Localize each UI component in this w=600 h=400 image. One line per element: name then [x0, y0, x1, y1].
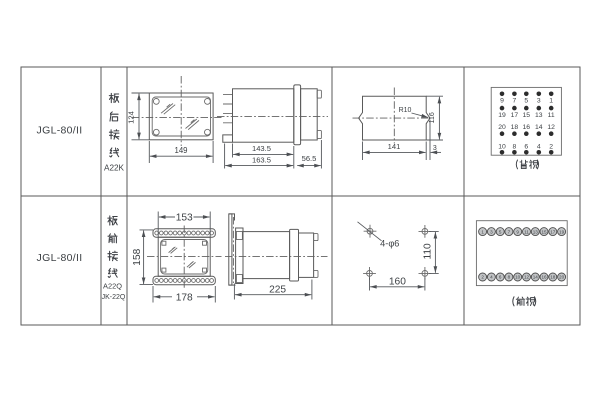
svg-text:153: 153	[176, 213, 193, 224]
svg-text:141: 141	[388, 142, 401, 151]
svg-text:A22Q: A22Q	[103, 282, 122, 291]
svg-text:124: 124	[126, 111, 135, 124]
svg-text:16: 16	[523, 124, 531, 131]
svg-text:2: 2	[481, 275, 484, 280]
svg-text:17: 17	[550, 229, 556, 234]
svg-text:19: 19	[498, 112, 506, 119]
svg-text:10: 10	[515, 275, 521, 280]
svg-text:14: 14	[535, 124, 543, 131]
svg-text:9: 9	[500, 98, 504, 105]
svg-text:5: 5	[524, 98, 528, 105]
svg-text:17: 17	[511, 112, 519, 119]
svg-text:4: 4	[537, 143, 541, 150]
svg-text:7: 7	[508, 229, 511, 234]
svg-text:56.5: 56.5	[302, 154, 317, 163]
svg-text:1: 1	[549, 98, 553, 105]
svg-text:225: 225	[269, 285, 286, 296]
svg-text:9: 9	[516, 229, 519, 234]
svg-text:6: 6	[524, 143, 528, 150]
svg-text:5: 5	[499, 229, 502, 234]
svg-text:JK-22Q: JK-22Q	[102, 294, 126, 301]
svg-text:110: 110	[423, 243, 434, 260]
svg-text:20: 20	[559, 275, 565, 280]
svg-text:10: 10	[498, 143, 506, 150]
svg-text:4-φ6: 4-φ6	[380, 239, 399, 249]
svg-text:8: 8	[508, 275, 511, 280]
svg-text:158: 158	[132, 248, 143, 265]
svg-text:JGL-80/II: JGL-80/II	[37, 125, 83, 137]
svg-text:15: 15	[523, 112, 531, 119]
svg-text:160: 160	[389, 277, 406, 288]
svg-text:143.5: 143.5	[252, 144, 271, 153]
svg-text:16: 16	[541, 275, 547, 280]
svg-text:R10: R10	[399, 107, 412, 114]
svg-text:20: 20	[498, 124, 506, 131]
svg-text:7: 7	[513, 98, 517, 105]
svg-text:11: 11	[524, 229, 529, 234]
svg-text:11: 11	[548, 112, 555, 119]
svg-text:149: 149	[174, 146, 187, 155]
svg-text:15: 15	[541, 229, 547, 234]
svg-text:JGL-80/II: JGL-80/II	[37, 252, 83, 264]
svg-text:12: 12	[524, 275, 530, 280]
svg-text:12: 12	[547, 124, 555, 131]
svg-text:178: 178	[176, 292, 193, 303]
svg-text:14: 14	[533, 275, 539, 280]
svg-text:13: 13	[533, 229, 539, 234]
svg-text:3: 3	[537, 98, 541, 105]
svg-text:3: 3	[433, 145, 437, 152]
svg-text:8: 8	[513, 143, 517, 150]
svg-text:4: 4	[490, 275, 493, 280]
svg-text:6: 6	[499, 275, 502, 280]
svg-text:2: 2	[549, 143, 553, 150]
svg-text:A22K: A22K	[104, 164, 125, 173]
svg-text:13: 13	[535, 112, 543, 119]
svg-text:18: 18	[550, 275, 556, 280]
svg-text:163.5: 163.5	[252, 155, 271, 164]
svg-text:19: 19	[559, 229, 565, 234]
svg-text:3: 3	[490, 229, 493, 234]
svg-text:18: 18	[511, 124, 519, 131]
svg-text:1: 1	[481, 229, 484, 234]
